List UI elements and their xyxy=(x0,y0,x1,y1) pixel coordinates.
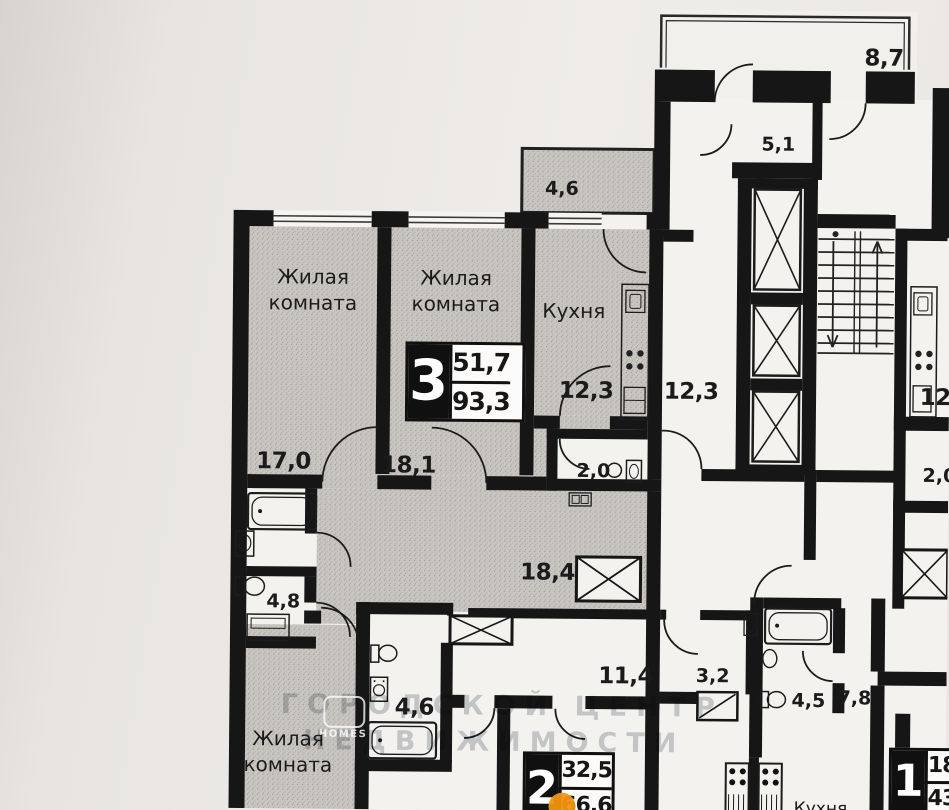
label-right-wc-area: 2,0 xyxy=(922,465,949,487)
label-room2-name: Жилая комната xyxy=(397,264,515,317)
label-kitchen-name: Кухня xyxy=(529,297,619,324)
apartment-3-living-area: 51,7 xyxy=(449,345,510,381)
label-corridor-area: 12,3 xyxy=(664,379,719,405)
windows xyxy=(274,210,602,229)
elevator-shaft-icon xyxy=(754,189,801,289)
label-hall-area: 18,4 xyxy=(520,559,575,585)
window xyxy=(274,210,372,227)
label-room1-name: Жилая комната xyxy=(254,263,372,316)
apartment-3-number: 3 xyxy=(408,344,450,418)
apartment-2-living-area: 32,5 xyxy=(558,755,612,787)
apartment-1-number: 1 xyxy=(891,751,925,810)
apartment-1-living-area: 18 xyxy=(925,751,949,781)
apartment-3-total-area: 93,3 xyxy=(449,380,510,419)
floor-plan-photo: ГОРОДСКОЙ ЦЕНТР НЕДВИЖИМОСТИ HOMES Жилая… xyxy=(0,0,949,810)
floor-plan: ГОРОДСКОЙ ЦЕНТР НЕДВИЖИМОСТИ HOMES Жилая… xyxy=(0,0,949,810)
label-room1-area: 17,0 xyxy=(256,448,311,474)
window xyxy=(549,213,602,229)
apartment-1-tag: 1 18 43 xyxy=(888,748,949,810)
shaft-x-icon xyxy=(901,550,947,598)
shaft-x-icon xyxy=(576,557,640,602)
label-kitchen-area: 12,3 xyxy=(559,378,614,404)
label-balcony87-area: 8,7 xyxy=(864,45,903,71)
label-wc-area: 2,0 xyxy=(576,460,610,482)
label-bath46-area: 4,6 xyxy=(395,694,434,720)
label-right-kitchen-area: 12,3 xyxy=(920,385,949,411)
label-hall114-area: 11,4 xyxy=(598,663,653,689)
elevator-shaft-icon xyxy=(753,391,800,461)
label-bath48-area: 4,8 xyxy=(266,590,300,612)
apartment-1-total-area: 43 xyxy=(924,780,949,810)
label-room3-name: Жилая комната xyxy=(229,725,347,778)
balcony-top xyxy=(522,148,655,213)
elevator-shaft-icon xyxy=(753,305,800,375)
label-bottom-kitchen-name: Кухня xyxy=(794,799,848,810)
label-hall78-area: 7,8 xyxy=(838,687,872,709)
label-room2-area: 18,1 xyxy=(381,452,436,478)
label-bath45-area: 4,5 xyxy=(791,690,825,712)
label-room32-area: 3,2 xyxy=(696,665,730,687)
window xyxy=(409,211,505,228)
shaft-x-icon xyxy=(450,616,512,645)
watermark-logo-icon xyxy=(323,696,365,728)
elevator-shafts xyxy=(753,189,801,461)
apartment-3-tag: 3 51,7 93,3 xyxy=(405,341,526,422)
label-lift-hall-area: 5,1 xyxy=(761,133,795,155)
label-balcony-area: 4,6 xyxy=(545,178,579,200)
